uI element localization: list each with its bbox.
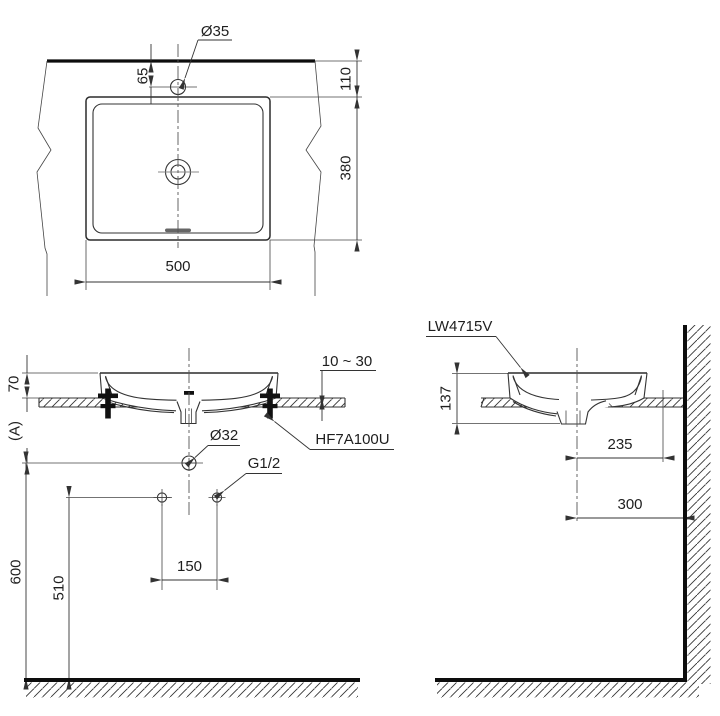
counter-cutout-side (559, 397, 591, 409)
label-fitting-code: HF7A100U (315, 431, 389, 448)
label-counter-height-ref: (A) (6, 421, 23, 441)
technical-drawing: 65 Ø35 110 380 500 (0, 0, 720, 716)
dim-rim-above-counter: 70 (5, 376, 22, 393)
dim-basin-height: 137 (437, 386, 454, 411)
floor-hatch-left (26, 683, 358, 698)
floor-hatch-right (437, 683, 699, 698)
dim-rim-depth: 380 (337, 155, 354, 180)
dim-supply-height: 510 (50, 575, 67, 600)
dim-drain-line-height: 600 (7, 559, 24, 584)
label-drain-dia: Ø32 (210, 427, 238, 444)
dim-fixing-to-wall: 235 (607, 436, 632, 453)
dim-supply-spacing: 150 (177, 558, 202, 575)
drawing-sheet: 65 Ø35 110 380 500 (0, 0, 720, 716)
wall-hatch (688, 325, 711, 684)
label-product-code: LW4715V (428, 318, 493, 335)
dim-rim-width: 500 (165, 258, 190, 275)
dim-faucet-offset: 65 (134, 68, 151, 85)
label-faucet-hole-dia: Ø35 (201, 23, 229, 40)
label-counter-thickness: 10 ~ 30 (322, 353, 372, 370)
dim-back-edge-to-rim: 110 (337, 67, 354, 91)
label-supply-thread: G1/2 (248, 455, 281, 472)
dim-center-to-wall: 300 (617, 496, 642, 513)
